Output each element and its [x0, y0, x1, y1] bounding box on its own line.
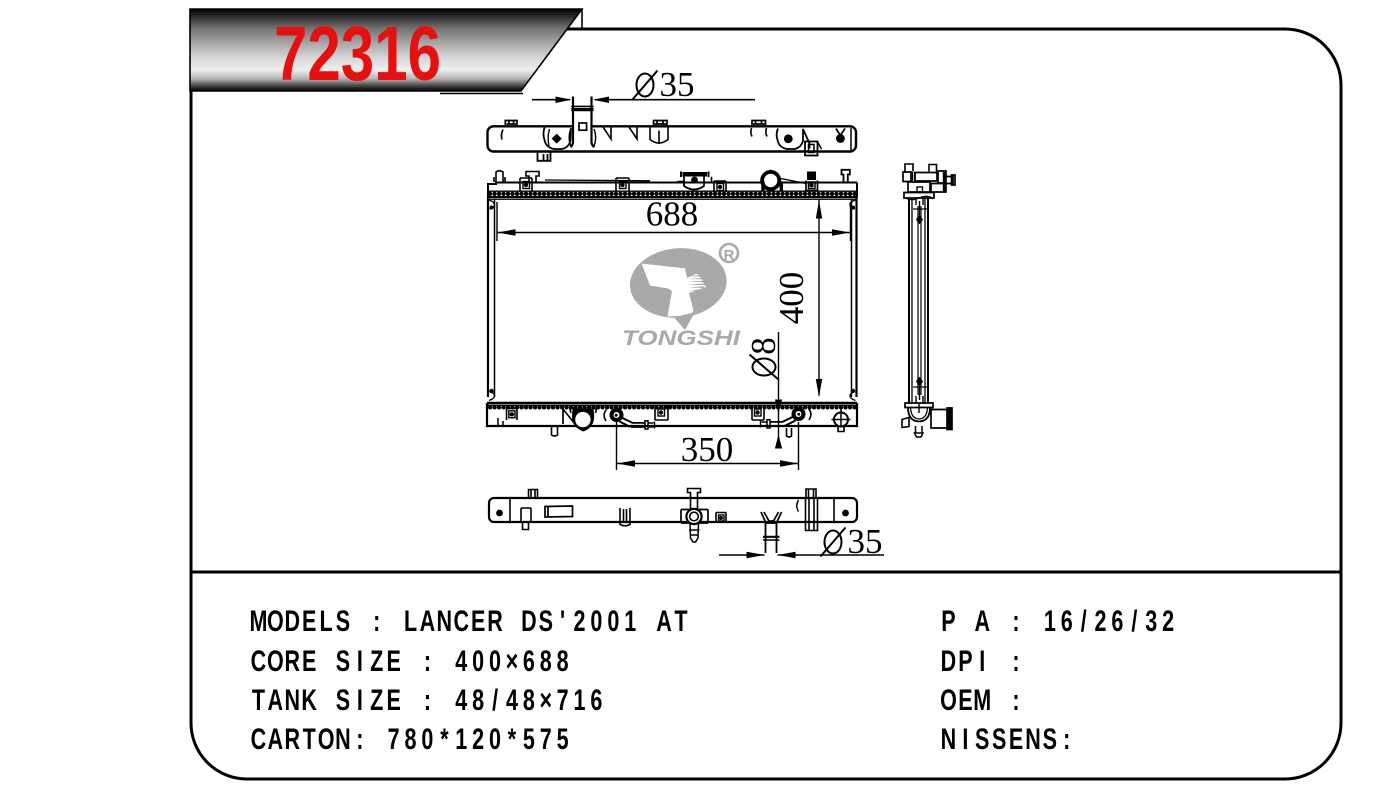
svg-text:R: R: [724, 247, 735, 264]
svg-text:35: 35: [848, 522, 883, 561]
svg-text:TANKSIZE:48/48×716: TANKSIZE:48/48×716: [252, 685, 603, 717]
svg-text:350: 350: [681, 430, 734, 469]
svg-text:400: 400: [772, 272, 811, 325]
svg-text:72316: 72316: [274, 11, 441, 97]
svg-text:8: 8: [744, 337, 783, 355]
svg-text:688: 688: [646, 195, 699, 234]
svg-text:35: 35: [660, 65, 695, 104]
svg-text:TONGSHI: TONGSHI: [622, 327, 741, 350]
